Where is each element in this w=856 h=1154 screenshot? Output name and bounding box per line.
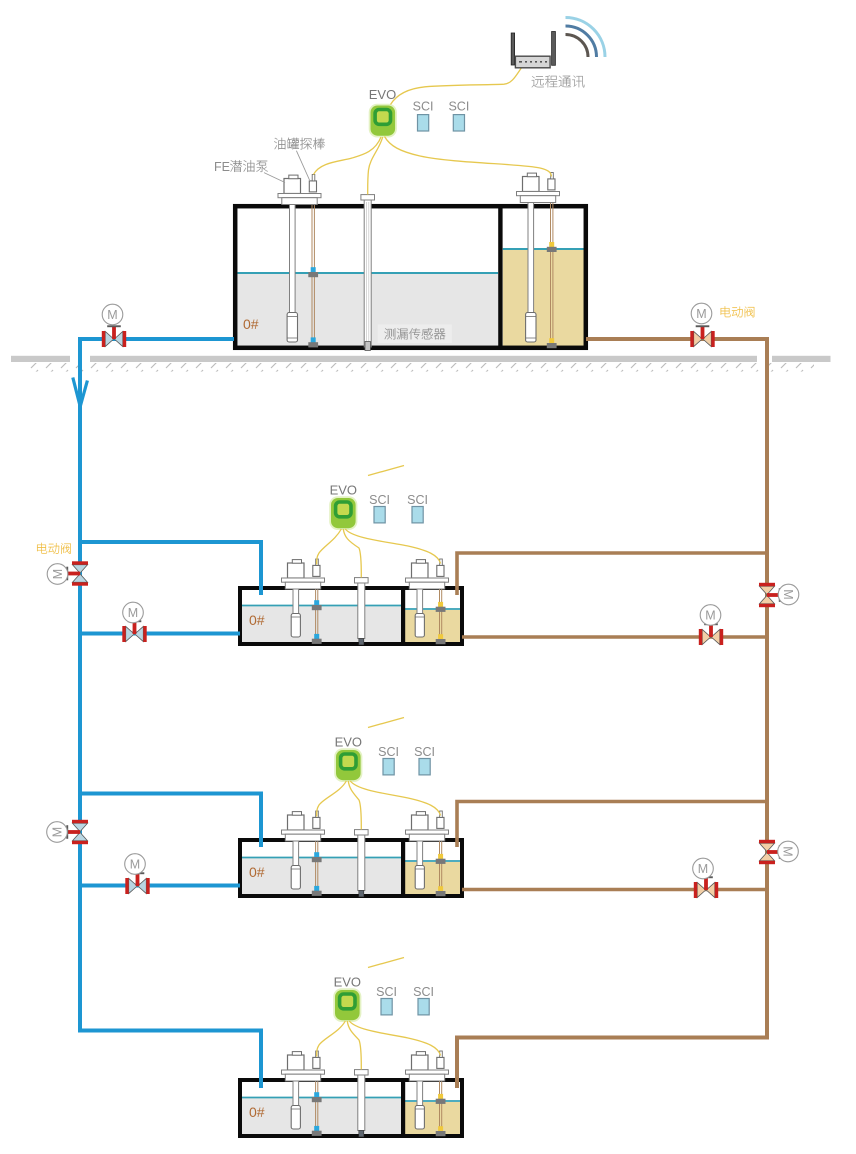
svg-text:SCI: SCI (378, 745, 399, 759)
svg-text:0#: 0# (243, 316, 259, 332)
svg-text:0#: 0# (249, 612, 265, 628)
svg-text:0#: 0# (249, 864, 265, 880)
svg-text:SCI: SCI (376, 985, 397, 999)
svg-text:SCI: SCI (407, 493, 428, 507)
svg-text:EVO: EVO (334, 975, 361, 990)
svg-text:SCI: SCI (448, 100, 469, 114)
svg-text:FE: FE (214, 160, 230, 174)
svg-text:SCI: SCI (413, 100, 434, 114)
svg-text:0#: 0# (249, 1104, 265, 1120)
svg-text:SCI: SCI (414, 745, 435, 759)
svg-text:SCI: SCI (369, 493, 390, 507)
svg-text:EVO: EVO (369, 87, 396, 102)
svg-text:SCI: SCI (413, 985, 434, 999)
svg-text:EVO: EVO (335, 735, 362, 750)
svg-text:EVO: EVO (330, 483, 357, 498)
